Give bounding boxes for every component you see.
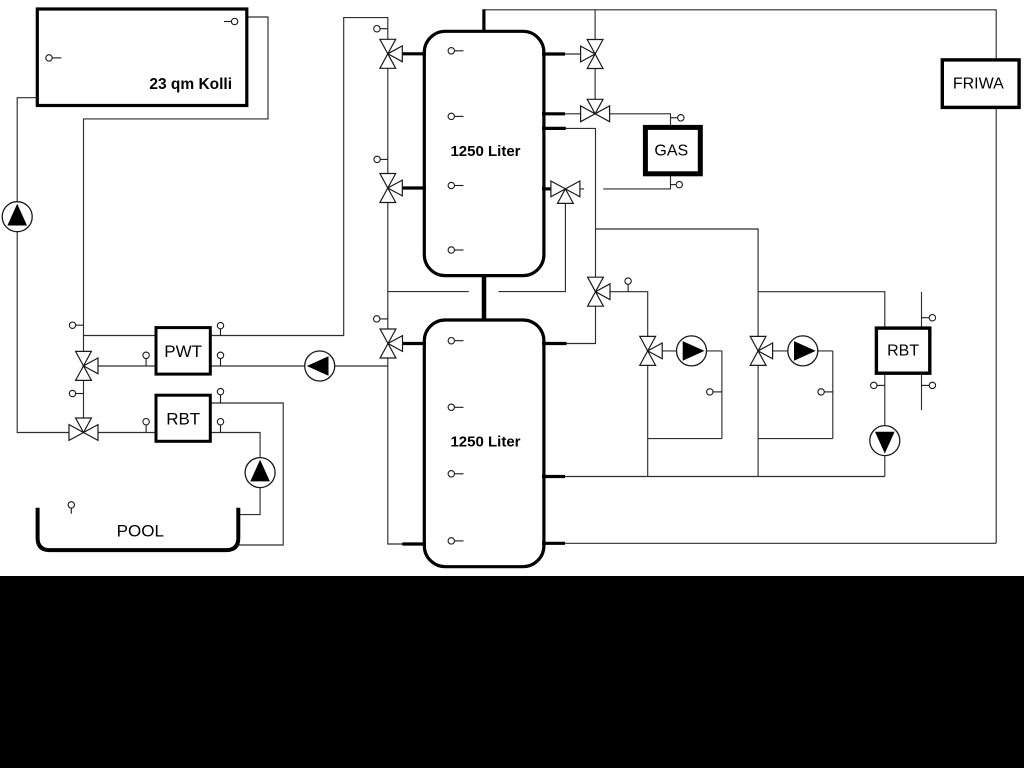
svg-text:POOL: POOL (117, 521, 164, 540)
svg-text:PWT: PWT (164, 342, 202, 361)
svg-text:RBT: RBT (887, 343, 919, 360)
svg-text:GAS: GAS (654, 143, 688, 160)
svg-text:FRIWA: FRIWA (953, 76, 1004, 93)
svg-text:1250 Liter: 1250 Liter (450, 434, 520, 451)
svg-text:RBT: RBT (166, 410, 200, 429)
svg-text:1250 Liter: 1250 Liter (450, 143, 520, 160)
svg-text:23 qm Kolli: 23 qm Kolli (149, 76, 232, 93)
